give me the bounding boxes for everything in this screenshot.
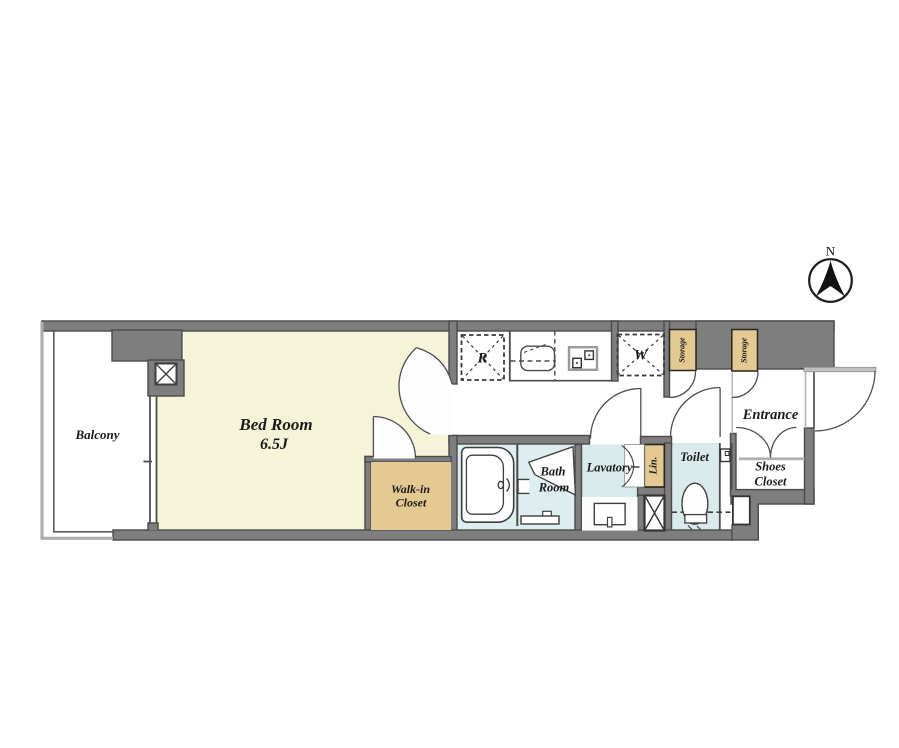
svg-text:Balcony: Balcony — [74, 427, 119, 442]
svg-text:6.5J: 6.5J — [260, 436, 289, 453]
svg-text:Entrance: Entrance — [742, 407, 799, 423]
svg-text:Lin.: Lin. — [649, 457, 660, 476]
svg-text:Closet: Closet — [755, 475, 787, 489]
svg-text:Storage: Storage — [740, 337, 749, 363]
svg-text:Bath: Bath — [539, 465, 565, 479]
svg-text:R: R — [476, 351, 487, 367]
svg-text:Toilet: Toilet — [680, 450, 709, 464]
svg-text:N: N — [826, 244, 836, 259]
svg-text:Shoes: Shoes — [755, 460, 786, 474]
svg-text:Lavatory: Lavatory — [586, 461, 633, 475]
svg-text:Room: Room — [538, 481, 570, 495]
svg-text:Closet: Closet — [396, 496, 427, 510]
svg-text:Bed Room: Bed Room — [238, 415, 312, 434]
svg-text:W: W — [634, 348, 649, 364]
svg-text:Walk-in: Walk-in — [391, 482, 430, 496]
svg-text:Storage: Storage — [678, 337, 687, 363]
